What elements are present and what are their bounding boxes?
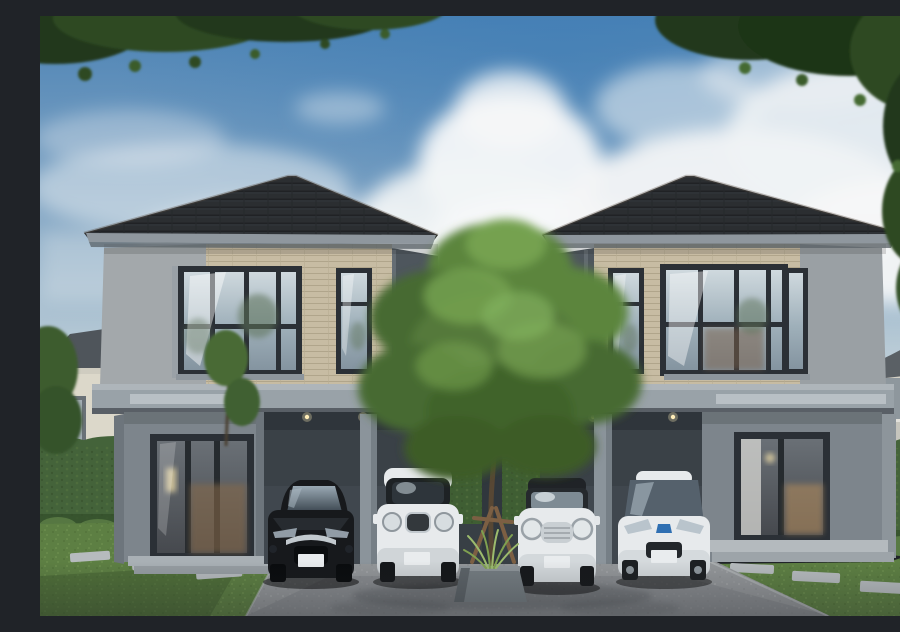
left-house-narrow-window: [336, 268, 372, 374]
scene-svg: [40, 16, 900, 616]
right-house-side-wall: [800, 244, 886, 388]
rendered-photo: Architectural rendering of twin two-stor…: [40, 16, 900, 616]
mirror: [457, 514, 463, 524]
interior-shelves: [704, 328, 764, 370]
right-fascia: [544, 234, 896, 243]
grille: [406, 513, 430, 532]
mirror: [594, 516, 600, 525]
brand-emblem: [656, 524, 672, 533]
interior-sofa: [190, 484, 246, 553]
bottom-vignette: [40, 561, 900, 616]
headlight: [383, 513, 401, 531]
left-carport-pillar: [360, 414, 377, 564]
left-ground-window: [150, 434, 254, 560]
interior-curtain: [741, 439, 761, 535]
headlight: [572, 519, 592, 539]
headlight: [522, 519, 542, 539]
right-ground-window: [734, 432, 830, 542]
right-carport-pillar: [594, 414, 612, 564]
headlight: [435, 513, 453, 531]
fog-light: [269, 545, 277, 553]
mirror: [514, 516, 520, 525]
interior-sofa: [785, 484, 823, 534]
hood-highlight: [273, 518, 349, 530]
right-house-large-window: [660, 264, 810, 380]
interior-lamp: [765, 453, 775, 463]
fog-light: [345, 545, 353, 553]
right-porch: [704, 540, 894, 562]
mirror: [373, 514, 379, 524]
